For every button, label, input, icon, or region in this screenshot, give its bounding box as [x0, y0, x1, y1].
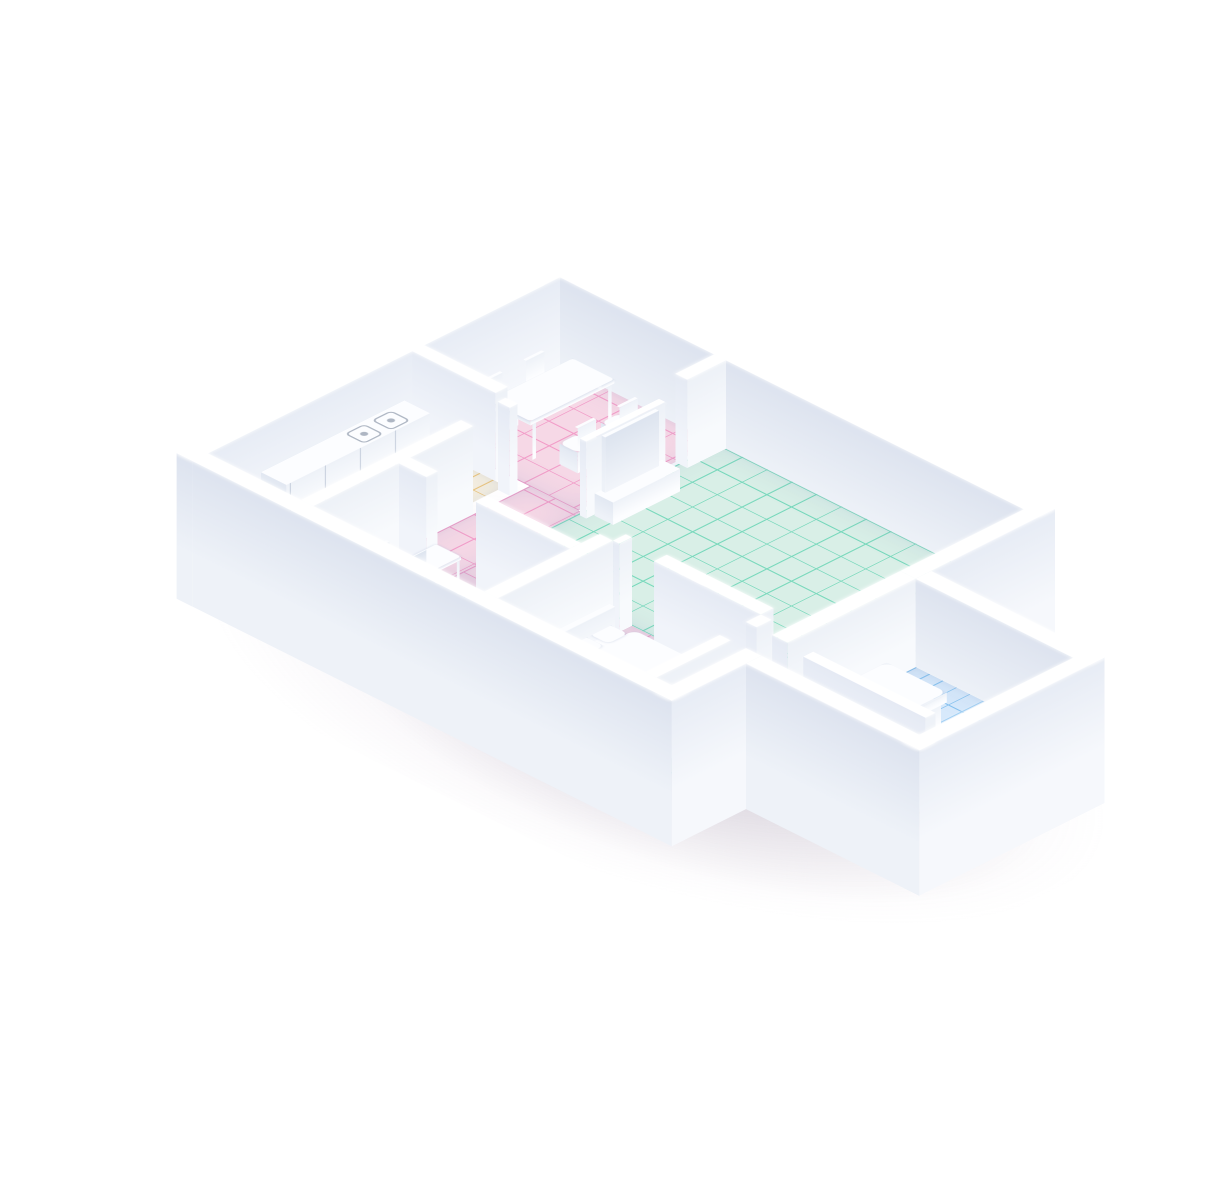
outer-wall-face [656, 693, 672, 846]
floorplan-render [0, 0, 1224, 1200]
inner-wall-face [619, 537, 632, 632]
inner-wall-face [675, 374, 687, 468]
dining-table-leg [532, 423, 536, 460]
inner-wall-face [510, 404, 518, 496]
wing-wall-face [919, 742, 935, 895]
inner-wall-face [498, 402, 510, 496]
